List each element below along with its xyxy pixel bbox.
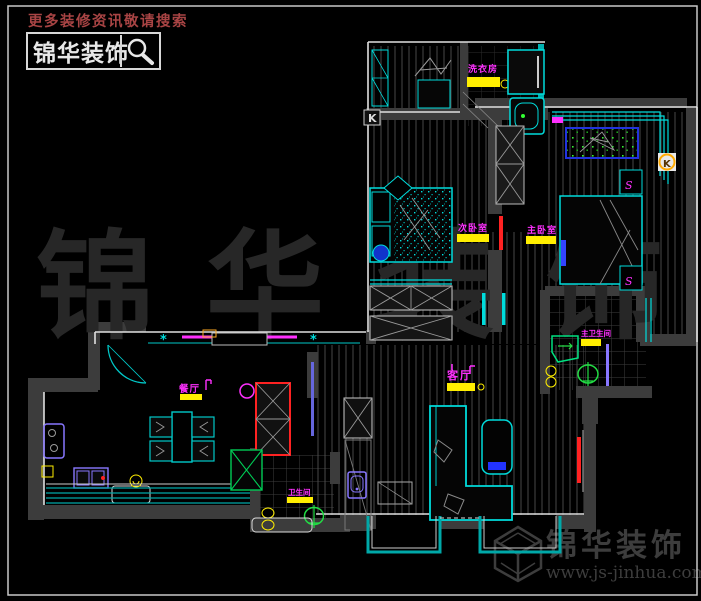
door-purple <box>606 344 609 386</box>
wardrobe-x <box>496 126 524 204</box>
door-left-purple <box>311 362 314 436</box>
wall-symbol: * <box>310 333 317 348</box>
wall-symbol: * <box>160 333 167 348</box>
top-left-branding: 更多装修资讯敬请搜索 锦华装饰 <box>27 12 188 69</box>
area-highlight <box>526 236 556 244</box>
svg-text:K: K <box>368 112 377 125</box>
bottom-website-url: www.js-jinhua.com <box>546 563 701 583</box>
search-tagline: 更多装修资讯敬请搜索 <box>28 12 188 30</box>
door-jamb <box>502 293 506 325</box>
magenta-circle <box>240 384 254 398</box>
room-label-bath: 卫生间 <box>288 487 311 497</box>
window-sill <box>212 333 267 345</box>
floorplan-svg: 锦华装饰 锦华装饰 www.js-jinhua.com <box>0 0 701 601</box>
room-label-laundry: 洗衣房 <box>468 63 498 75</box>
bed-small <box>418 80 450 108</box>
room-label-dining: 餐厅 <box>178 383 200 395</box>
room-label-master-bath: 主卫生间 <box>581 328 611 338</box>
counter-purple <box>44 424 64 458</box>
table-tray <box>488 462 506 470</box>
magenta-fixture <box>552 117 563 123</box>
area-highlight <box>581 339 601 346</box>
dining-room: 餐厅 <box>150 380 214 462</box>
green-dot <box>521 114 525 118</box>
pillow <box>372 192 390 222</box>
door-jamb <box>482 293 486 325</box>
room-label-living: 客厅 <box>446 368 473 382</box>
lamp-marker: S <box>625 275 633 288</box>
bottom-right-branding: 锦华装饰 www.js-jinhua.com <box>495 527 701 583</box>
k-marker-right: K <box>658 153 676 171</box>
area-highlight <box>180 394 202 400</box>
cad-floorplan-image: 锦华装饰 锦华装饰 www.js-jinhua.com <box>0 0 701 601</box>
area-highlight <box>447 383 475 391</box>
floor-drain <box>130 475 142 487</box>
red-dot <box>101 476 105 480</box>
dining-table <box>172 412 192 462</box>
door-red <box>499 216 503 250</box>
stool-blue <box>373 245 389 261</box>
tv-wall-red <box>577 437 581 483</box>
bench-blue <box>561 240 566 266</box>
logo-text: 锦华装饰 <box>33 40 129 67</box>
kitchen-bay-window <box>46 488 250 503</box>
k-marker-left: K <box>364 110 380 125</box>
area-highlight <box>467 77 500 87</box>
lamp-marker: S <box>625 179 633 192</box>
room-label-master: 主卧室 <box>527 224 557 236</box>
area-highlight <box>457 234 489 242</box>
quilt-texture <box>394 189 451 261</box>
lamp-glyph <box>206 380 211 390</box>
area-highlight <box>287 497 313 503</box>
svg-text:K: K <box>663 159 672 170</box>
jinhua-cube-logo-icon <box>495 527 541 581</box>
room-label-bedroom2: 次卧室 <box>458 222 488 234</box>
bottom-company-name: 锦华装饰 <box>546 528 686 564</box>
kitchen <box>42 424 250 503</box>
